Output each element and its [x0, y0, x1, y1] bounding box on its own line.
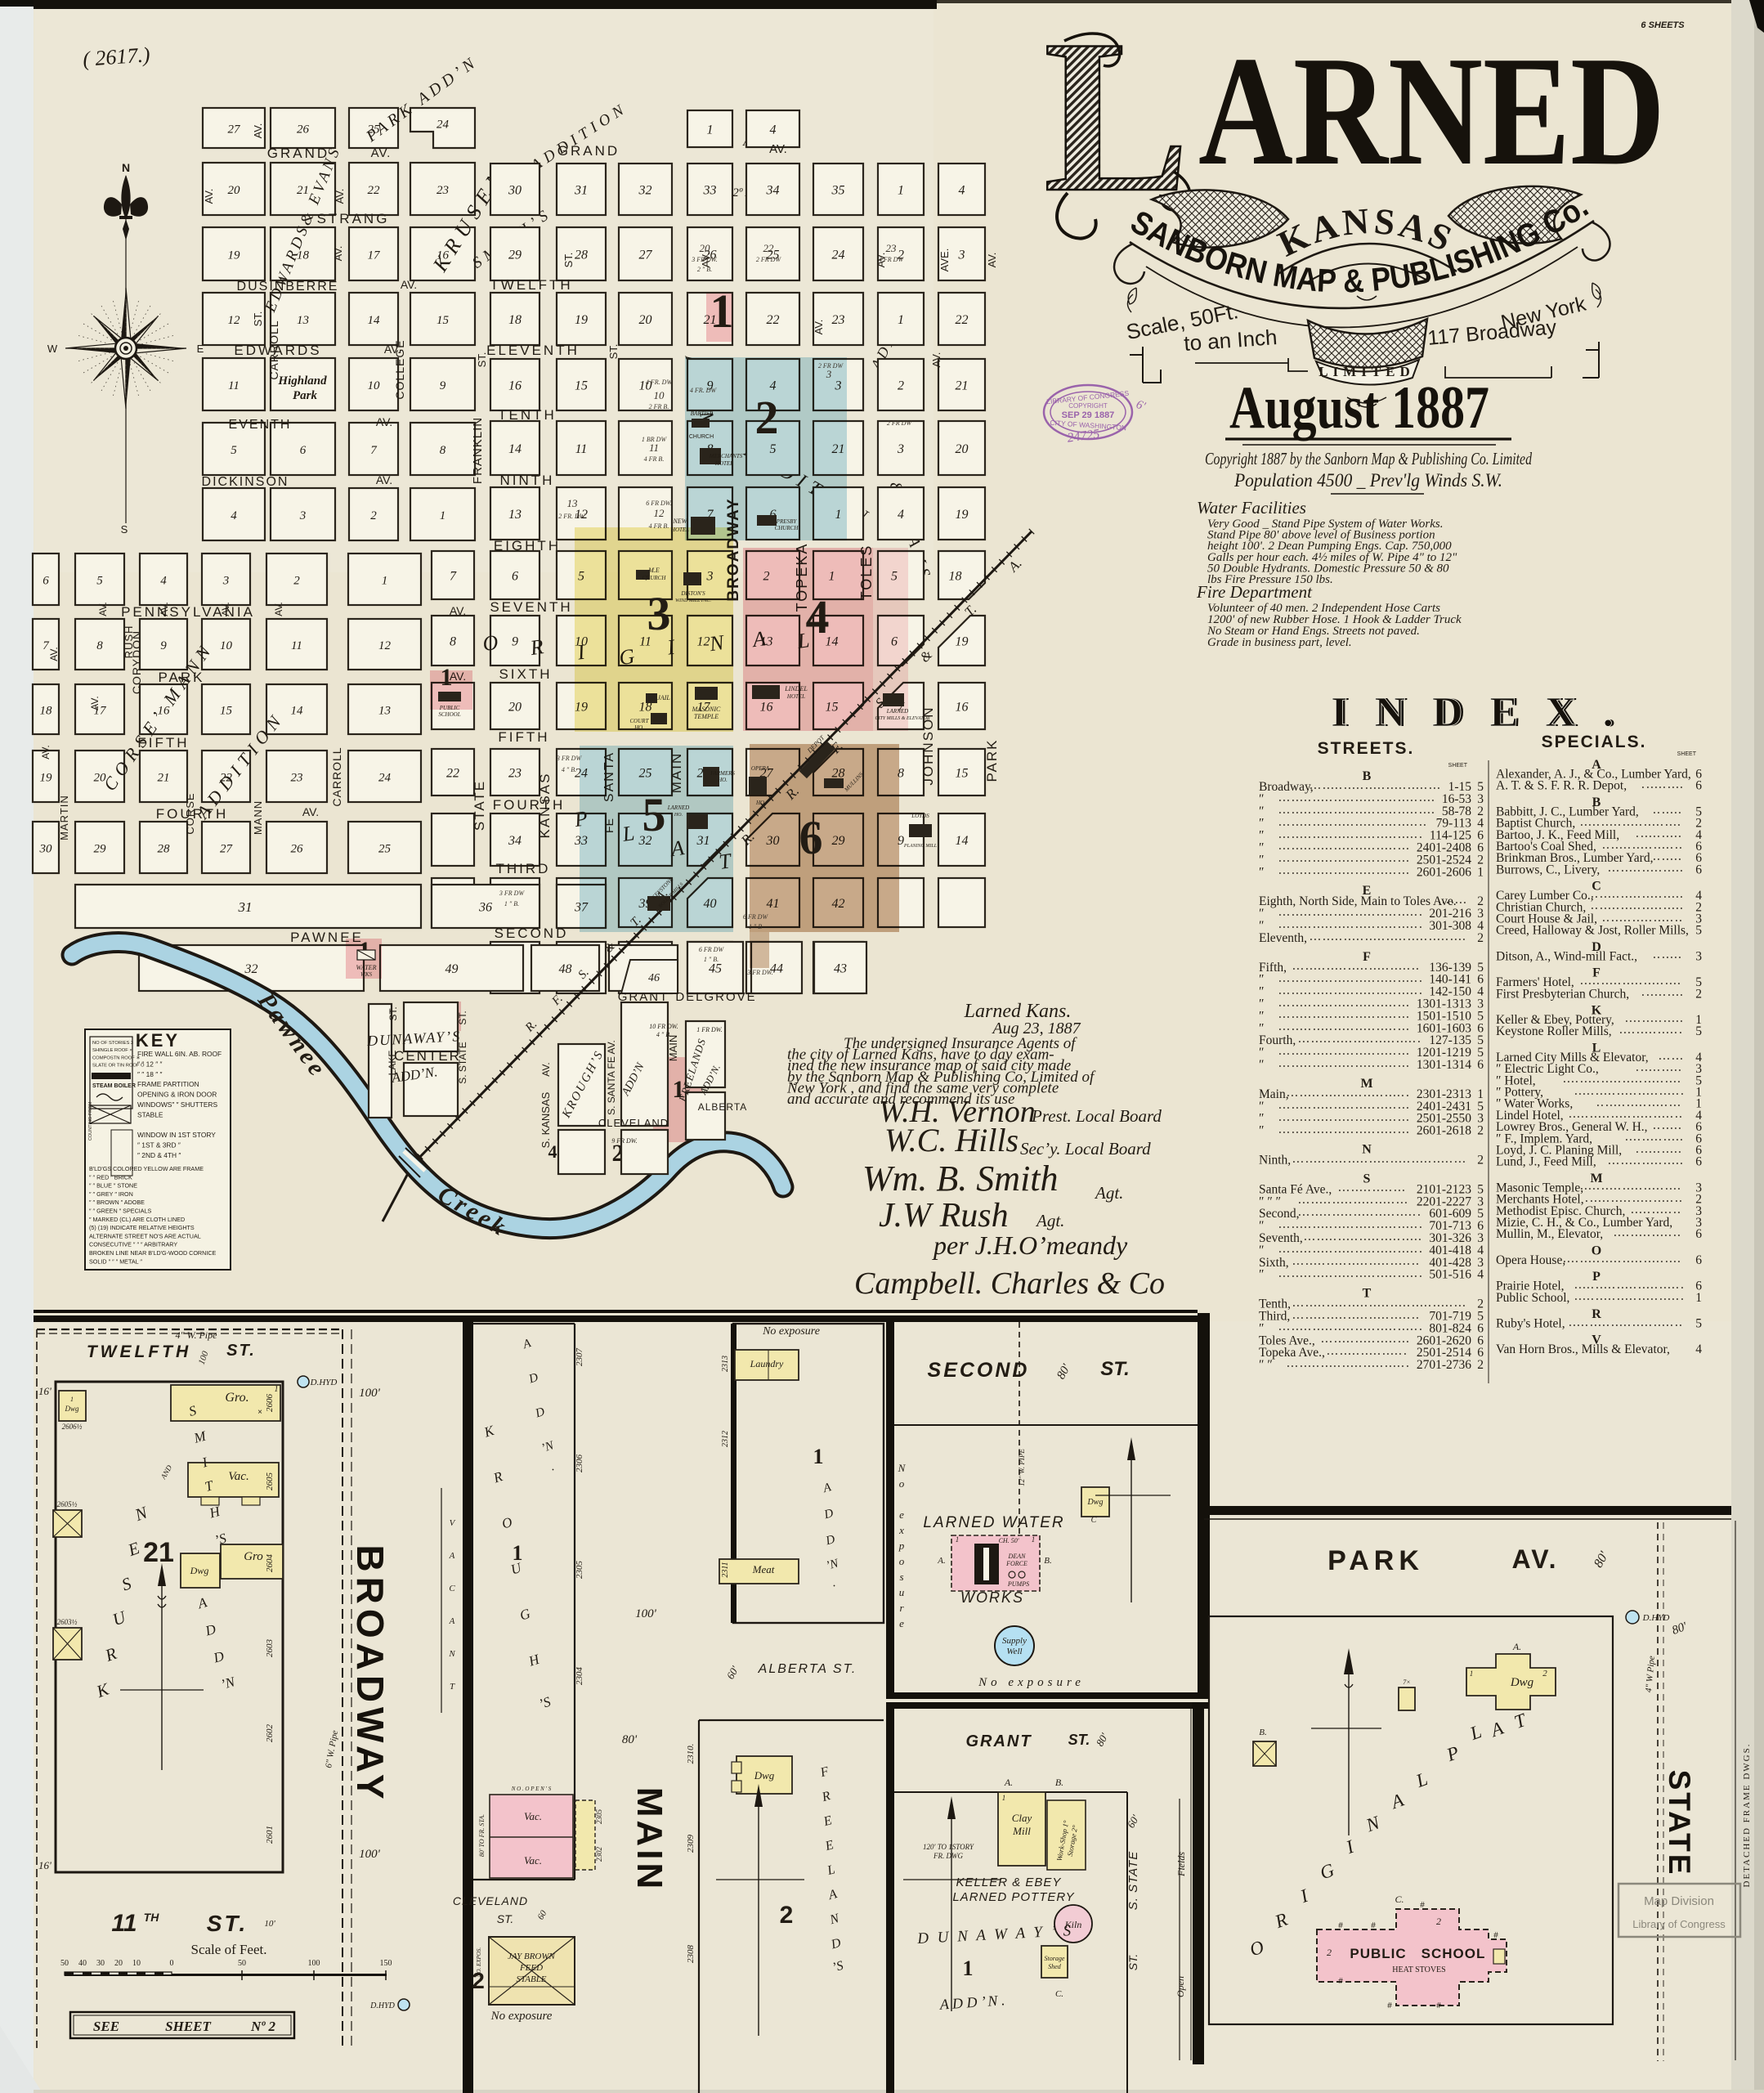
- svg-text:Vac.: Vac.: [524, 1854, 542, 1867]
- svg-text:SHEET: SHEET: [1448, 763, 1468, 769]
- svg-text:3 FR DW: 3 FR DW: [499, 890, 526, 897]
- svg-text:EVENTH: EVENTH: [229, 418, 292, 432]
- svg-text:EIGHTH: EIGHTH: [494, 538, 561, 554]
- svg-text:Wm. B. Smith: Wm. B. Smith: [862, 1159, 1059, 1199]
- svg-text:″ 1ST & 3RD ″: ″ 1ST & 3RD ″: [137, 1141, 181, 1150]
- svg-text:16': 16': [38, 1859, 51, 1871]
- svg-text:6: 6: [1477, 1058, 1484, 1072]
- svg-text:PUBLIC: PUBLIC: [1350, 1946, 1406, 1961]
- svg-text:CLEVELAND: CLEVELAND: [598, 1117, 669, 1129]
- svg-text:1: 1: [1695, 1291, 1702, 1305]
- svg-text:T: T: [450, 1682, 455, 1692]
- svg-text:2701-2736: 2701-2736: [1417, 1358, 1471, 1372]
- svg-text:28: 28: [158, 843, 171, 856]
- svg-text:Agt.: Agt.: [1035, 1211, 1064, 1230]
- svg-text:1: 1: [440, 509, 446, 522]
- svg-text:3: 3: [958, 249, 965, 262]
- svg-text:MASONIC: MASONIC: [692, 706, 721, 713]
- svg-text:First Presbyterian Church,: First Presbyterian Church,: [1496, 987, 1629, 1001]
- svg-text:8: 8: [450, 635, 456, 649]
- svg-text:4 FR DW: 4 FR DW: [879, 256, 905, 263]
- svg-text:2605: 2605: [265, 1472, 275, 1491]
- svg-text:N: N: [122, 161, 130, 174]
- svg-text:WATER: WATER: [356, 964, 377, 971]
- svg-text:Storage: Storage: [1045, 1955, 1065, 1962]
- svg-text:R: R: [1592, 1307, 1601, 1321]
- svg-text:CONSECUTIVE ″ ″ ″ AR: CONSECUTIVE ″ ″ ″ ARBITRARY: [89, 1241, 177, 1248]
- svg-text:34: 34: [766, 184, 780, 198]
- svg-text:18: 18: [40, 705, 53, 718]
- svg-text:CENTER: CENTER: [394, 1048, 461, 1064]
- svg-text:SIXTH: SIXTH: [499, 666, 552, 682]
- svg-text:13: 13: [567, 497, 579, 509]
- svg-text:2 FR B.: 2 FR B.: [649, 403, 669, 410]
- svg-text:2605½: 2605½: [57, 1500, 78, 1508]
- svg-text:GRANT: GRANT: [965, 1732, 1032, 1750]
- svg-text:19: 19: [575, 313, 588, 327]
- svg-text:9: 9: [160, 639, 167, 652]
- svg-text:DISTON'S: DISTON'S: [680, 590, 705, 597]
- svg-text:M: M: [1360, 1077, 1372, 1091]
- svg-text:e: e: [899, 1508, 904, 1521]
- svg-text:LARNED: LARNED: [886, 708, 908, 715]
- svg-text:3: 3: [299, 509, 307, 522]
- svg-text:August 1887: August 1887: [1229, 374, 1489, 441]
- svg-text:HOTEL: HOTEL: [670, 527, 689, 533]
- svg-text:1: 1: [956, 1535, 960, 1544]
- svg-text:10 FR DW.: 10 FR DW.: [649, 1023, 678, 1030]
- svg-text:2308: 2308: [686, 1945, 696, 1964]
- svg-text:4: 4: [898, 508, 904, 522]
- svg-text:5: 5: [231, 444, 237, 457]
- svg-text:2601-2618: 2601-2618: [1417, 1124, 1471, 1138]
- svg-text:6: 6: [1695, 863, 1702, 876]
- svg-text:per J.H.O’meandy: per J.H.O’meandy: [932, 1230, 1128, 1260]
- svg-text:B.: B.: [1259, 1728, 1266, 1737]
- svg-text:13: 13: [508, 508, 522, 522]
- svg-text:″: ″: [1259, 1058, 1264, 1072]
- svg-text:FARMERS: FARMERS: [710, 770, 735, 777]
- svg-text:N: N: [898, 1462, 907, 1474]
- svg-text:MAIN: MAIN: [629, 1787, 669, 1892]
- svg-text:TENTH: TENTH: [498, 407, 557, 423]
- svg-text:15: 15: [956, 767, 969, 781]
- svg-text:MANN: MANN: [252, 800, 264, 835]
- svg-text:I N D E X .: I N D E X .: [1331, 689, 1622, 736]
- svg-text:16: 16: [508, 379, 522, 393]
- svg-text:10: 10: [368, 379, 381, 392]
- svg-text:ST.: ST.: [207, 1911, 248, 1936]
- svg-text:1: 1: [710, 285, 734, 338]
- svg-text:1: 1: [707, 123, 714, 137]
- svg-text:1 ″ B.: 1 ″ B.: [504, 900, 519, 908]
- svg-text:9: 9: [440, 379, 446, 392]
- svg-text:11: 11: [649, 441, 659, 454]
- svg-text:6: 6: [512, 570, 518, 584]
- svg-text:1: 1: [898, 313, 904, 327]
- svg-text:1: 1: [1477, 865, 1484, 879]
- svg-text:AV.: AV.: [332, 246, 344, 262]
- svg-text:o: o: [899, 1477, 905, 1490]
- svg-text:SEVENTH: SEVENTH: [490, 599, 572, 615]
- svg-text:3: 3: [222, 575, 230, 588]
- svg-text:Library of Congress: Library of Congress: [1632, 1918, 1726, 1930]
- svg-text:2 FR. DW.: 2 FR. DW.: [558, 513, 586, 520]
- svg-text:x: x: [898, 1524, 904, 1536]
- svg-text:LINDEL: LINDEL: [784, 685, 808, 692]
- svg-text:HO.: HO.: [634, 724, 644, 731]
- svg-text:FR. DWG: FR. DWG: [933, 1852, 963, 1860]
- svg-text:(5) (19) INDICATE RELATIVE HEI: (5) (19) INDICATE RELATIVE HEIGHTS: [89, 1224, 195, 1231]
- svg-text:AVE.: AVE.: [938, 249, 951, 272]
- svg-text:4: 4: [806, 590, 830, 643]
- svg-text:6 FR DW.: 6 FR DW.: [646, 500, 672, 507]
- svg-text:DELGROVE: DELGROVE: [675, 990, 756, 1004]
- svg-text:2307: 2307: [575, 1348, 584, 1367]
- svg-text:22: 22: [767, 313, 780, 327]
- svg-text:TWELFTH: TWELFTH: [490, 277, 572, 293]
- svg-text:Mullin, M., Elevator,: Mullin, M., Elevator,: [1496, 1227, 1603, 1241]
- svg-text:OPENING & IRON DOOR: OPENING & IRON DOOR: [137, 1091, 217, 1099]
- svg-text:PENNSYLVANIA: PENNSYLVANIA: [121, 604, 255, 620]
- svg-text:Dwg: Dwg: [64, 1405, 79, 1413]
- svg-text:30: 30: [39, 843, 53, 856]
- svg-text:2309: 2309: [686, 1835, 696, 1853]
- svg-text:#: #: [1420, 1901, 1425, 1910]
- svg-text:2: 2: [1477, 1358, 1484, 1372]
- svg-text:Ruby's Hotel,: Ruby's Hotel,: [1496, 1317, 1565, 1331]
- svg-text:2305: 2305: [575, 1561, 584, 1580]
- svg-text:Seventh,: Seventh,: [1259, 1231, 1303, 1245]
- svg-text:Gro: Gro: [244, 1550, 263, 1563]
- svg-text:C.: C.: [1055, 1989, 1063, 1999]
- svg-text:A: A: [449, 1551, 455, 1561]
- svg-text:1: 1: [1002, 1794, 1006, 1802]
- svg-text:2603½: 2603½: [57, 1618, 78, 1626]
- svg-text:AV.: AV.: [273, 602, 284, 616]
- svg-text:50: 50: [238, 1959, 246, 1968]
- svg-text:#: #: [1493, 1931, 1498, 1940]
- svg-text:BROADWAY: BROADWAY: [349, 1544, 392, 1804]
- svg-text:AV.: AV.: [302, 805, 319, 818]
- svg-text:11: 11: [575, 442, 588, 456]
- svg-text:STREETS.: STREETS.: [1318, 739, 1415, 758]
- svg-text:W: W: [47, 343, 58, 355]
- svg-text:11: 11: [111, 1910, 137, 1937]
- svg-text:Broadway,: Broadway,: [1259, 780, 1314, 794]
- svg-text:PRESBY: PRESBY: [776, 518, 798, 525]
- svg-text:27: 27: [639, 249, 653, 262]
- svg-text:2604: 2604: [265, 1554, 275, 1573]
- svg-text:CHURCH: CHURCH: [642, 575, 667, 581]
- svg-text:S. STATE: S. STATE: [1126, 1851, 1140, 1910]
- svg-text:12: 12: [228, 314, 241, 327]
- svg-text:MAIN: MAIN: [667, 1035, 679, 1062]
- svg-text:6: 6: [799, 811, 823, 864]
- svg-text:#: #: [1371, 1921, 1376, 1930]
- svg-text:COMPOSTN ROOF ∗: COMPOSTN ROOF ∗: [92, 1055, 140, 1060]
- svg-text:JAIL: JAIL: [657, 694, 670, 701]
- svg-text:ST.: ST.: [226, 1342, 256, 1360]
- svg-text:No exposure: No exposure: [490, 2010, 553, 2023]
- svg-text:1: 1: [441, 664, 453, 691]
- svg-text:19: 19: [956, 508, 969, 522]
- svg-text:2601: 2601: [265, 1826, 275, 1844]
- svg-text:STATE: STATE: [472, 780, 487, 831]
- svg-text:COLLEGE: COLLEGE: [393, 339, 406, 399]
- svg-text:2305: 2305: [595, 1809, 603, 1825]
- svg-text:″ ″ GREY ″ IRON: ″ ″ GREY ″ IRON: [89, 1190, 133, 1198]
- svg-text:27: 27: [228, 123, 242, 137]
- svg-text:12: 12: [378, 639, 392, 652]
- svg-text:15: 15: [220, 705, 233, 718]
- svg-text:No exposure: No exposure: [762, 1325, 820, 1338]
- svg-text:Dwg: Dwg: [1087, 1498, 1104, 1507]
- svg-text:32: 32: [638, 184, 652, 198]
- svg-text:″ MARKED (CL) ARE CLOTH LINE: ″ MARKED (CL) ARE CLOTH LINED: [89, 1216, 185, 1223]
- svg-text:#: #: [1387, 2001, 1392, 2010]
- svg-text:AV.: AV.: [450, 604, 466, 617]
- svg-text:2: 2: [1542, 1669, 1547, 1678]
- svg-text:ALBERTA ST.: ALBERTA ST.: [758, 1662, 857, 1676]
- svg-text:SEP 29 1887: SEP 29 1887: [1062, 410, 1115, 420]
- svg-text:2: 2: [1436, 1916, 1441, 1927]
- svg-text:″ ″ GREEN ″ SPECIALS: ″ ″ GREEN ″ SPECIALS: [89, 1208, 152, 1215]
- svg-text:″ 2ND & 4TH ″: ″ 2ND & 4TH ″: [137, 1151, 181, 1159]
- svg-text:KELLER & EBEY: KELLER & EBEY: [956, 1876, 1062, 1889]
- svg-text:12: 12: [654, 507, 665, 519]
- svg-text:1 ″ B: 1 ″ B: [749, 923, 762, 930]
- svg-text:2: 2: [1695, 987, 1702, 1001]
- svg-text:ST.: ST.: [562, 253, 575, 268]
- svg-text:NINTH: NINTH: [500, 473, 555, 488]
- svg-text:120' TO 1STORY: 120' TO 1STORY: [923, 1843, 974, 1851]
- svg-text:9 FR DW.: 9 FR DW.: [611, 1137, 638, 1145]
- svg-text:6 FR DW: 6 FR DW: [699, 946, 725, 953]
- svg-text:″: ″: [1259, 1124, 1264, 1138]
- svg-text:4: 4: [770, 123, 777, 137]
- svg-text:16: 16: [956, 701, 969, 715]
- svg-text:Laundry: Laundry: [750, 1358, 784, 1369]
- svg-text:OPERA: OPERA: [751, 765, 770, 772]
- svg-text:AV.: AV.: [1511, 1544, 1558, 1574]
- svg-text:3: 3: [897, 442, 904, 456]
- svg-text:4 FR. DW: 4 FR. DW: [690, 387, 718, 394]
- svg-text:31: 31: [574, 184, 588, 198]
- svg-text:80' TO FR. STA.: 80' TO FR. STA.: [478, 1814, 486, 1857]
- svg-text:ST.: ST.: [1068, 1732, 1090, 1748]
- svg-text:ST.: ST.: [1100, 1358, 1130, 1380]
- svg-text:STABLE: STABLE: [516, 1974, 546, 1984]
- svg-text:2606½: 2606½: [62, 1423, 83, 1431]
- svg-text:30: 30: [96, 1959, 105, 1968]
- svg-text:COURT: COURT: [630, 718, 650, 724]
- svg-text:″ ″ BROWN ″ ADOBE: ″ ″ BROWN ″ ADOBE: [89, 1199, 145, 1206]
- svg-text:p: p: [898, 1539, 905, 1552]
- svg-text:Fire Department: Fire Department: [1196, 582, 1313, 602]
- svg-text:STABLE: STABLE: [137, 1110, 163, 1118]
- svg-text:2310.: 2310.: [686, 1744, 696, 1764]
- svg-text:SEE: SEE: [93, 2019, 119, 2034]
- svg-text:SECOND: SECOND: [928, 1359, 1030, 1382]
- svg-text:LARNED: LARNED: [667, 804, 689, 811]
- svg-text:46: 46: [648, 972, 660, 984]
- svg-text:26: 26: [297, 123, 310, 137]
- svg-text:T: T: [1363, 1287, 1372, 1301]
- svg-text:Dwg: Dwg: [190, 1565, 209, 1576]
- svg-text:9: 9: [512, 635, 518, 649]
- svg-text:Fourth,: Fourth,: [1259, 1033, 1296, 1047]
- svg-text:WKS: WKS: [360, 971, 373, 978]
- svg-text:25: 25: [378, 843, 392, 856]
- svg-text:23: 23: [832, 313, 845, 327]
- svg-text:4: 4: [160, 575, 167, 588]
- svg-text:D.HYD: D.HYD: [369, 2001, 396, 2010]
- svg-text:33: 33: [703, 184, 717, 198]
- svg-text:ST.: ST.: [252, 311, 264, 327]
- svg-text:SHINGLE ROOF ×: SHINGLE ROOF ×: [92, 1048, 132, 1053]
- svg-text:8: 8: [96, 639, 103, 652]
- svg-text:3 FR DW.: 3 FR DW.: [746, 969, 773, 976]
- svg-text:THIRD: THIRD: [496, 861, 551, 876]
- svg-text:AV.: AV.: [40, 745, 51, 759]
- svg-text:24: 24: [378, 772, 392, 785]
- svg-text:GRAND: GRAND: [267, 146, 329, 161]
- svg-text:Gro.: Gro.: [225, 1391, 248, 1405]
- svg-text:21: 21: [158, 772, 170, 785]
- svg-text:AV.: AV.: [334, 189, 346, 204]
- svg-text:22: 22: [763, 242, 775, 254]
- svg-text:HO.: HO.: [717, 777, 728, 783]
- svg-text:SLATE OR TIN ROOF O: SLATE OR TIN ROOF O: [92, 1064, 145, 1069]
- svg-text:0: 0: [170, 1959, 174, 1968]
- svg-text:Grade in business part, level.: Grade in business part, level.: [1207, 636, 1352, 649]
- svg-text:20: 20: [508, 701, 522, 715]
- svg-text:s: s: [899, 1571, 903, 1583]
- svg-text:( 2617.): ( 2617.): [82, 43, 150, 71]
- svg-text:D.HYD: D.HYD: [1642, 1613, 1670, 1623]
- svg-text:21: 21: [143, 1537, 174, 1568]
- svg-text:KEY: KEY: [136, 1030, 180, 1051]
- svg-text:1: 1: [1032, 1535, 1036, 1544]
- svg-text:Sec’y. Local Board: Sec’y. Local Board: [1020, 1139, 1151, 1159]
- svg-text:CHURCH: CHURCH: [689, 434, 714, 440]
- svg-text:AV.: AV.: [540, 1062, 552, 1076]
- svg-text:COUNTING FROM: COUNTING FROM: [88, 1102, 93, 1141]
- svg-text:Public School,: Public School,: [1496, 1291, 1569, 1305]
- svg-text:Ditson, A., Wind-mill Fact.,: Ditson, A., Wind-mill Fact.,: [1496, 949, 1637, 963]
- svg-text:6: 6: [1695, 1253, 1702, 1267]
- svg-text:AV.: AV.: [203, 189, 215, 204]
- svg-text:2: 2: [1327, 1947, 1332, 1958]
- svg-text:Campbell. Charles & Co: Campbell. Charles & Co: [854, 1266, 1165, 1301]
- svg-text:1: 1: [382, 575, 388, 588]
- svg-text:5: 5: [642, 788, 666, 841]
- svg-text:20: 20: [114, 1959, 123, 1968]
- svg-text:STATE: STATE: [1663, 1770, 1696, 1877]
- svg-text:Vac.: Vac.: [524, 1810, 542, 1822]
- svg-text:3 FR DW: 3 FR DW: [556, 755, 583, 762]
- svg-text:FRANKLIN: FRANKLIN: [471, 417, 485, 484]
- svg-text:ST.: ST.: [457, 1011, 468, 1024]
- svg-text:WINDOW IN 1ST STORY: WINDOW IN 1ST STORY: [137, 1131, 216, 1139]
- svg-text:Shed: Shed: [1048, 1963, 1062, 1970]
- svg-text:ST.: ST.: [387, 1006, 399, 1020]
- svg-text:S. STATE: S. STATE: [457, 1042, 468, 1084]
- svg-text:14: 14: [508, 442, 522, 456]
- svg-text:Open: Open: [1175, 1976, 1186, 1997]
- svg-text:AV.: AV.: [930, 352, 942, 368]
- svg-text:2: 2: [1477, 931, 1484, 945]
- svg-text:2312: 2312: [721, 1431, 730, 1447]
- svg-text:13: 13: [378, 705, 391, 718]
- svg-text:19: 19: [956, 635, 969, 649]
- svg-text:LOYDS: LOYDS: [911, 813, 929, 819]
- svg-text:6 FR DW: 6 FR DW: [743, 913, 769, 921]
- svg-text:Well: Well: [1006, 1647, 1022, 1656]
- svg-text:23: 23: [508, 767, 522, 781]
- svg-text:80': 80': [622, 1733, 638, 1746]
- svg-text:Nº 2: Nº 2: [250, 2019, 276, 2034]
- svg-text:2 FR DW: 2 FR DW: [756, 256, 782, 263]
- svg-text:Copyright 1887 by the Sanborn: Copyright 1887 by the Sanborn Map & Publ…: [1205, 449, 1532, 468]
- svg-text:6: 6: [1695, 779, 1702, 793]
- svg-text:1 ″ B.: 1 ″ B.: [704, 956, 719, 963]
- svg-text:CH. 50': CH. 50': [999, 1537, 1019, 1544]
- svg-text:4 FR. DW: 4 FR. DW: [646, 379, 674, 386]
- svg-text:1: 1: [275, 1385, 279, 1394]
- svg-text:WINDOWS″ ″ SHUTTERS: WINDOWS″ ″ SHUTTERS: [137, 1100, 217, 1109]
- svg-text:W.C. Hills: W.C. Hills: [884, 1122, 1019, 1159]
- svg-text:31: 31: [238, 899, 253, 915]
- svg-text:10: 10: [220, 639, 233, 652]
- svg-text:FIRE WALL 6IN. AB. ROOF: FIRE WALL 6IN. AB. ROOF: [137, 1050, 222, 1058]
- svg-text:N: N: [1362, 1143, 1372, 1157]
- svg-text:1: 1: [813, 1445, 824, 1468]
- svg-text:2: 2: [1477, 1124, 1484, 1138]
- svg-text:23: 23: [886, 242, 898, 254]
- svg-text:4 FR B.: 4 FR B.: [649, 522, 669, 530]
- svg-text:A.: A.: [1004, 1777, 1013, 1788]
- svg-text:17: 17: [368, 249, 382, 262]
- svg-text:5: 5: [1695, 1317, 1702, 1331]
- svg-text:2: 2: [1477, 1154, 1484, 1168]
- svg-text:C.: C.: [1395, 1894, 1404, 1905]
- svg-text:SECOND: SECOND: [495, 925, 569, 941]
- svg-text:No exposure: No exposure: [978, 1676, 1085, 1689]
- svg-text:#: #: [1338, 1921, 1343, 1930]
- svg-text:CARROLL: CARROLL: [267, 320, 280, 379]
- svg-text:J.W Rush: J.W Rush: [879, 1197, 1009, 1235]
- svg-text:LARNED WATER: LARNED WATER: [923, 1514, 1064, 1531]
- svg-text:N O . O P E N ' S: N O . O P E N ' S: [511, 1786, 552, 1792]
- svg-text:S: S: [121, 523, 128, 536]
- svg-text:AV.: AV.: [252, 123, 264, 139]
- svg-text:AV.: AV.: [220, 602, 231, 616]
- svg-text:ST.: ST.: [497, 1912, 514, 1925]
- svg-text:″: ″: [1259, 1268, 1264, 1282]
- svg-text:Fields: Fields: [1175, 1852, 1187, 1877]
- svg-text:B.: B.: [1055, 1777, 1063, 1788]
- svg-text:2 FR DW: 2 FR DW: [887, 419, 913, 427]
- svg-text:Highland: Highland: [277, 374, 327, 388]
- svg-text:AV.: AV.: [376, 415, 392, 428]
- svg-text:501-516: 501-516: [1429, 1268, 1471, 1282]
- svg-text:BROKEN LINE NEAR B'LD'G-WOOD C: BROKEN LINE NEAR B'LD'G-WOOD CORNICE: [89, 1249, 217, 1257]
- svg-text:A.: A.: [937, 1556, 945, 1566]
- svg-text:2606: 2606: [265, 1394, 275, 1413]
- svg-text:ST.: ST.: [1126, 1954, 1139, 1971]
